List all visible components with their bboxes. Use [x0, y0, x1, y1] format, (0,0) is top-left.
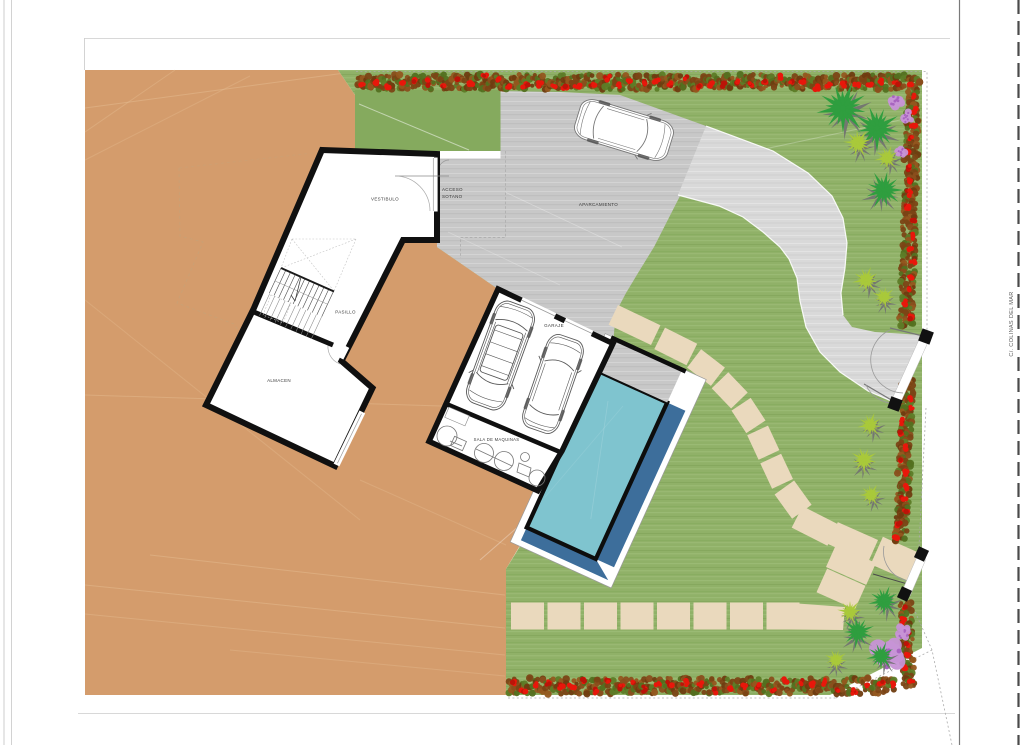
svg-text:APARCAMIENTO: APARCAMIENTO: [579, 202, 618, 207]
svg-text:SOTANO: SOTANO: [442, 194, 463, 199]
svg-text:ACCESO: ACCESO: [442, 187, 463, 192]
svg-text:C/. COLINAS DEL MAR: C/. COLINAS DEL MAR: [1009, 291, 1015, 356]
svg-text:GARAJE: GARAJE: [544, 323, 564, 328]
svg-text:SALA DE MAQUINAS: SALA DE MAQUINAS: [474, 437, 520, 442]
svg-text:PASILLO: PASILLO: [335, 310, 356, 315]
svg-text:VESTIBULO: VESTIBULO: [371, 197, 399, 202]
svg-text:ALMACEN: ALMACEN: [267, 378, 291, 383]
